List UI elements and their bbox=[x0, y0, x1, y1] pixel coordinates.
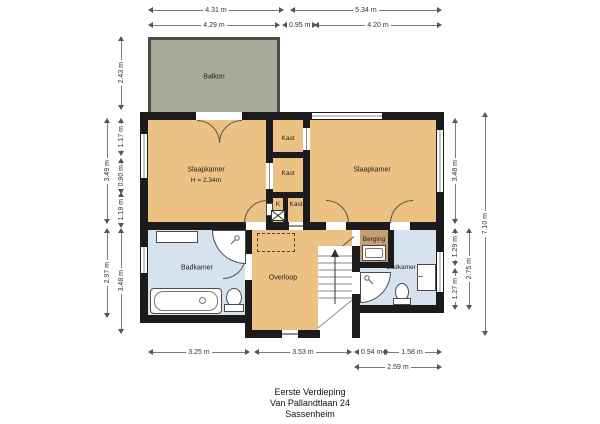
dim-top-095: 0.95 m bbox=[282, 20, 312, 30]
dimension-label: 4.29 m bbox=[201, 22, 226, 29]
dimension-label: 2.59 m bbox=[385, 364, 410, 371]
door-bedroom-right-opening2 bbox=[390, 222, 410, 230]
dim-left-297: 2.97 m bbox=[102, 228, 112, 318]
dim-bottom-094: 0.94 m bbox=[354, 347, 380, 357]
dimension-label: 1.17 m bbox=[118, 124, 125, 149]
balcony-door-opening bbox=[196, 112, 242, 120]
dim-right-127: 1.27 m bbox=[450, 268, 460, 310]
wall-kast-div2 bbox=[266, 192, 310, 198]
door-kast-top bbox=[303, 128, 310, 150]
room-label-berging: Berging bbox=[363, 237, 385, 244]
shower-head-icon-left bbox=[229, 234, 241, 246]
window-right-bedroom bbox=[437, 130, 443, 192]
shaft-symbol bbox=[271, 210, 285, 221]
room-label-badkamer-right: Badkamer bbox=[386, 265, 416, 272]
dim-top-429: 4.29 m bbox=[148, 20, 280, 30]
window-left-bathroom bbox=[141, 247, 147, 273]
opening-stairs-bottom bbox=[320, 330, 352, 338]
room-label-slaapkamer-left: Slaapkamer bbox=[187, 167, 224, 174]
dimension-label: 3.53 m bbox=[290, 349, 315, 356]
room-label-slaapkamer-right: Slaapkamer bbox=[353, 167, 390, 174]
floorplan-canvas: Balkon bbox=[0, 0, 600, 424]
window-right-bathroom bbox=[437, 252, 443, 292]
dim-left-349: 3.49 m bbox=[102, 118, 112, 224]
washing-machine-inner bbox=[365, 248, 383, 258]
shower-tray-mark bbox=[417, 276, 423, 277]
bathtub-inner bbox=[154, 291, 218, 311]
dim-top-420: 4.20 m bbox=[314, 20, 442, 30]
door-kast-mid bbox=[266, 163, 273, 189]
dim-right-129: 1.29 m bbox=[450, 228, 460, 266]
toilet-left-tank bbox=[224, 304, 244, 312]
wall-badkamer-right-bottom bbox=[352, 305, 444, 313]
shower-head-icon-right bbox=[363, 274, 375, 286]
title-city: Sassenheim bbox=[160, 409, 460, 420]
toilet-right-tank bbox=[393, 298, 411, 305]
dim-left-119: 1.19 m bbox=[116, 196, 126, 224]
door-bedroom-right-opening1 bbox=[326, 222, 346, 230]
dimension-label: 0.95 m bbox=[287, 22, 312, 29]
dimension-label: 1.58 m bbox=[399, 349, 424, 356]
dimension-label: 3.49 m bbox=[104, 158, 111, 183]
dim-bottom-259: 2.59 m bbox=[354, 362, 442, 372]
dimension-label: 2.97 m bbox=[104, 260, 111, 285]
wall-top bbox=[140, 112, 444, 120]
dimension-label: 3.48 m bbox=[118, 268, 125, 293]
room-label-balkon: Balkon bbox=[203, 74, 224, 81]
hatch-outline bbox=[257, 233, 295, 252]
door-berging-opening bbox=[352, 230, 360, 246]
title-block: Eerste Verdieping Van Pallandtlaan 24 Sa… bbox=[160, 387, 460, 420]
room-label-kast-top: Kast bbox=[281, 136, 294, 143]
staircase bbox=[318, 246, 352, 330]
dim-right-710: 7.10 m bbox=[480, 112, 490, 336]
title-address: Van Pallandtlaan 24 bbox=[160, 398, 460, 409]
door-kast-bottom bbox=[289, 222, 303, 230]
dim-bottom-325: 3.25 m bbox=[148, 347, 250, 357]
dim-left-090: 0.90 m bbox=[116, 158, 126, 194]
vanity-left-bathroom bbox=[156, 231, 198, 243]
dim-top-431: 4.31 m bbox=[148, 5, 284, 15]
room-label-kast-bottom: Kast bbox=[289, 202, 302, 209]
dim-left-243: 2.43 m bbox=[116, 36, 126, 110]
bathtub-drain bbox=[199, 297, 206, 304]
dimension-label: 1.19 m bbox=[118, 197, 125, 222]
window-left-bedroom bbox=[141, 134, 147, 178]
wall-berging-right bbox=[388, 230, 394, 268]
dim-right-275: 2.75 m bbox=[464, 228, 474, 310]
dimension-label: 2.43 m bbox=[118, 60, 125, 85]
dimension-label: 2.75 m bbox=[466, 256, 473, 281]
dimension-label: 0.94 m bbox=[359, 349, 384, 356]
dimension-label: 0.90 m bbox=[118, 163, 125, 188]
room-label-badkamer-left: Badkamer bbox=[181, 265, 213, 272]
room-label-kast-mid: Kast bbox=[281, 171, 294, 178]
room-label-kast-k: K bbox=[276, 202, 280, 209]
dimension-label: 3.48 m bbox=[452, 158, 459, 183]
wall-kast-div1 bbox=[266, 152, 310, 158]
opening-overloop-bottom bbox=[282, 330, 298, 338]
dim-right-348: 3.48 m bbox=[450, 118, 460, 224]
shower-tray-right bbox=[417, 264, 436, 291]
dimension-label: 4.31 m bbox=[203, 7, 228, 14]
dim-left-117: 1.17 m bbox=[116, 118, 126, 156]
room-label-slaapkamer-left-height: H = 2.34m bbox=[191, 178, 221, 185]
dim-bottom-353: 3.53 m bbox=[254, 347, 352, 357]
balcony-railing-right bbox=[277, 37, 280, 114]
dimension-label: 1.29 m bbox=[452, 234, 459, 259]
door-bathroom-left-opening bbox=[245, 254, 252, 280]
dim-top-534: 5.34 m bbox=[290, 5, 442, 15]
dimension-label: 3.25 m bbox=[186, 349, 211, 356]
title-floor: Eerste Verdieping bbox=[160, 387, 460, 398]
wall-bathroom-left-bottom bbox=[140, 315, 252, 323]
dim-left-348: 3.48 m bbox=[116, 228, 126, 334]
dim-bottom-158: 1.58 m bbox=[382, 347, 442, 357]
balcony-railing-left bbox=[148, 37, 151, 114]
dimension-label: 5.34 m bbox=[353, 7, 378, 14]
balcony-railing-top bbox=[148, 37, 280, 40]
dimension-label: 4.20 m bbox=[365, 22, 390, 29]
door-bedroom-left-opening bbox=[246, 222, 266, 230]
door-badkamer-right-opening bbox=[352, 272, 360, 294]
dimension-label: 1.27 m bbox=[452, 276, 459, 301]
dimension-label: 7.10 m bbox=[482, 211, 489, 236]
room-label-overloop: Overloop bbox=[269, 275, 297, 282]
window-top-right-bedroom bbox=[312, 113, 382, 119]
